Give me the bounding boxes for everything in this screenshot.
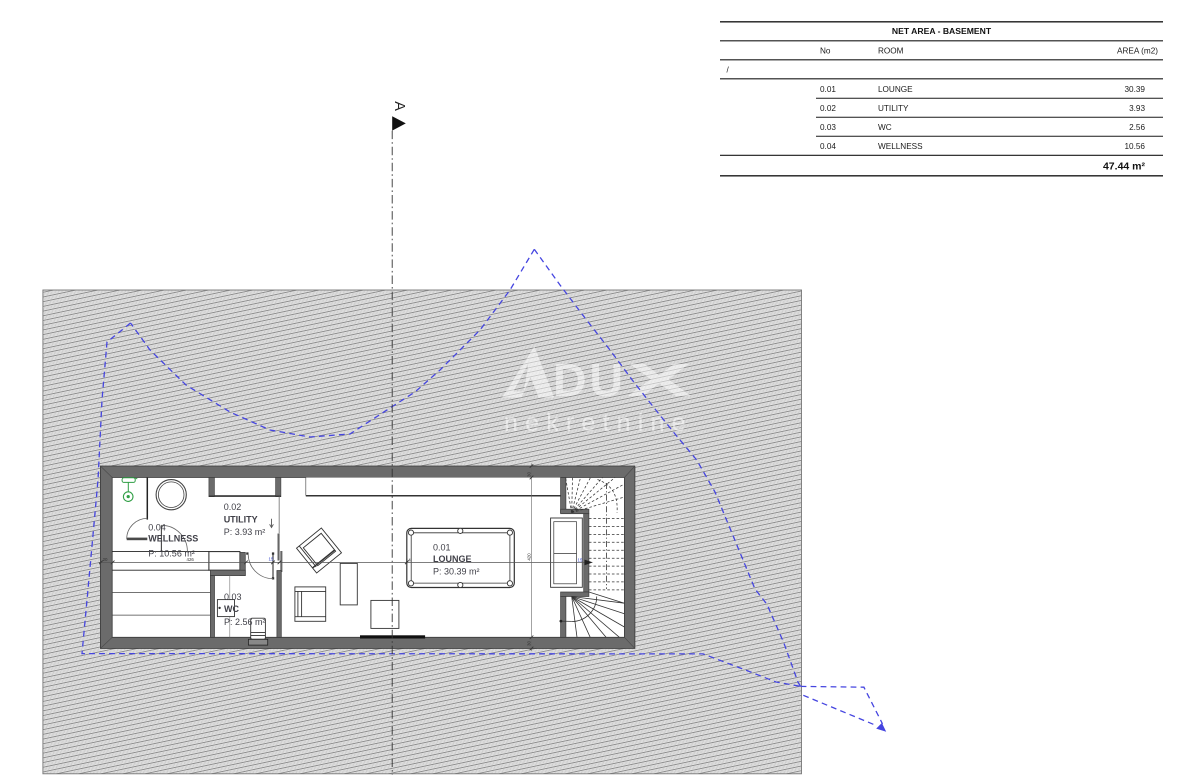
- svg-text:10.56: 10.56: [1125, 142, 1146, 151]
- svg-text:0.01: 0.01: [820, 85, 836, 94]
- svg-text:P: 3.93 m²: P: 3.93 m²: [224, 527, 266, 537]
- svg-text:P: 2.56 m²: P: 2.56 m²: [224, 617, 266, 627]
- svg-text:0.01: 0.01: [433, 542, 451, 552]
- svg-text:2.56: 2.56: [1129, 123, 1145, 132]
- svg-text:30.39: 30.39: [1125, 85, 1146, 94]
- svg-text:WC: WC: [878, 123, 892, 132]
- svg-text:14: 14: [406, 557, 411, 562]
- svg-text:15: 15: [578, 557, 583, 562]
- svg-text:/: /: [727, 65, 730, 74]
- svg-text:LOUNGE: LOUNGE: [878, 85, 913, 94]
- svg-text:ROOM: ROOM: [878, 46, 904, 55]
- svg-text:A: A: [391, 101, 407, 111]
- svg-text:NET AREA - BASEMENT: NET AREA - BASEMENT: [892, 26, 992, 36]
- svg-text:30: 30: [527, 472, 532, 477]
- svg-text:0.04: 0.04: [148, 523, 166, 533]
- svg-text:0.02: 0.02: [224, 502, 242, 512]
- svg-text:P: 30.39 m²: P: 30.39 m²: [433, 567, 480, 577]
- svg-text:47.44 m²: 47.44 m²: [1103, 161, 1146, 173]
- svg-text:WELLNESS: WELLNESS: [148, 533, 198, 543]
- svg-text:WELLNESS: WELLNESS: [878, 142, 923, 151]
- svg-text:D: D: [553, 354, 587, 406]
- svg-text:3.93: 3.93: [1129, 104, 1145, 113]
- svg-text:AREA (m2): AREA (m2): [1117, 46, 1158, 55]
- svg-text:UTILITY: UTILITY: [224, 515, 258, 525]
- svg-text:30: 30: [527, 641, 532, 646]
- svg-text:No: No: [820, 46, 831, 55]
- svg-text:420: 420: [527, 553, 532, 561]
- svg-text:0.02: 0.02: [820, 104, 836, 113]
- svg-text:20: 20: [103, 557, 108, 562]
- svg-text:0.04: 0.04: [820, 142, 836, 151]
- svg-text:X: X: [627, 354, 692, 406]
- svg-text:nekretnine: nekretnine: [504, 409, 693, 437]
- svg-text:0.03: 0.03: [820, 123, 836, 132]
- svg-text:WC: WC: [224, 604, 239, 614]
- svg-text:15: 15: [269, 557, 274, 562]
- svg-text:0.03: 0.03: [224, 592, 242, 602]
- svg-text:UTILITY: UTILITY: [878, 104, 909, 113]
- svg-text:426: 426: [187, 557, 195, 562]
